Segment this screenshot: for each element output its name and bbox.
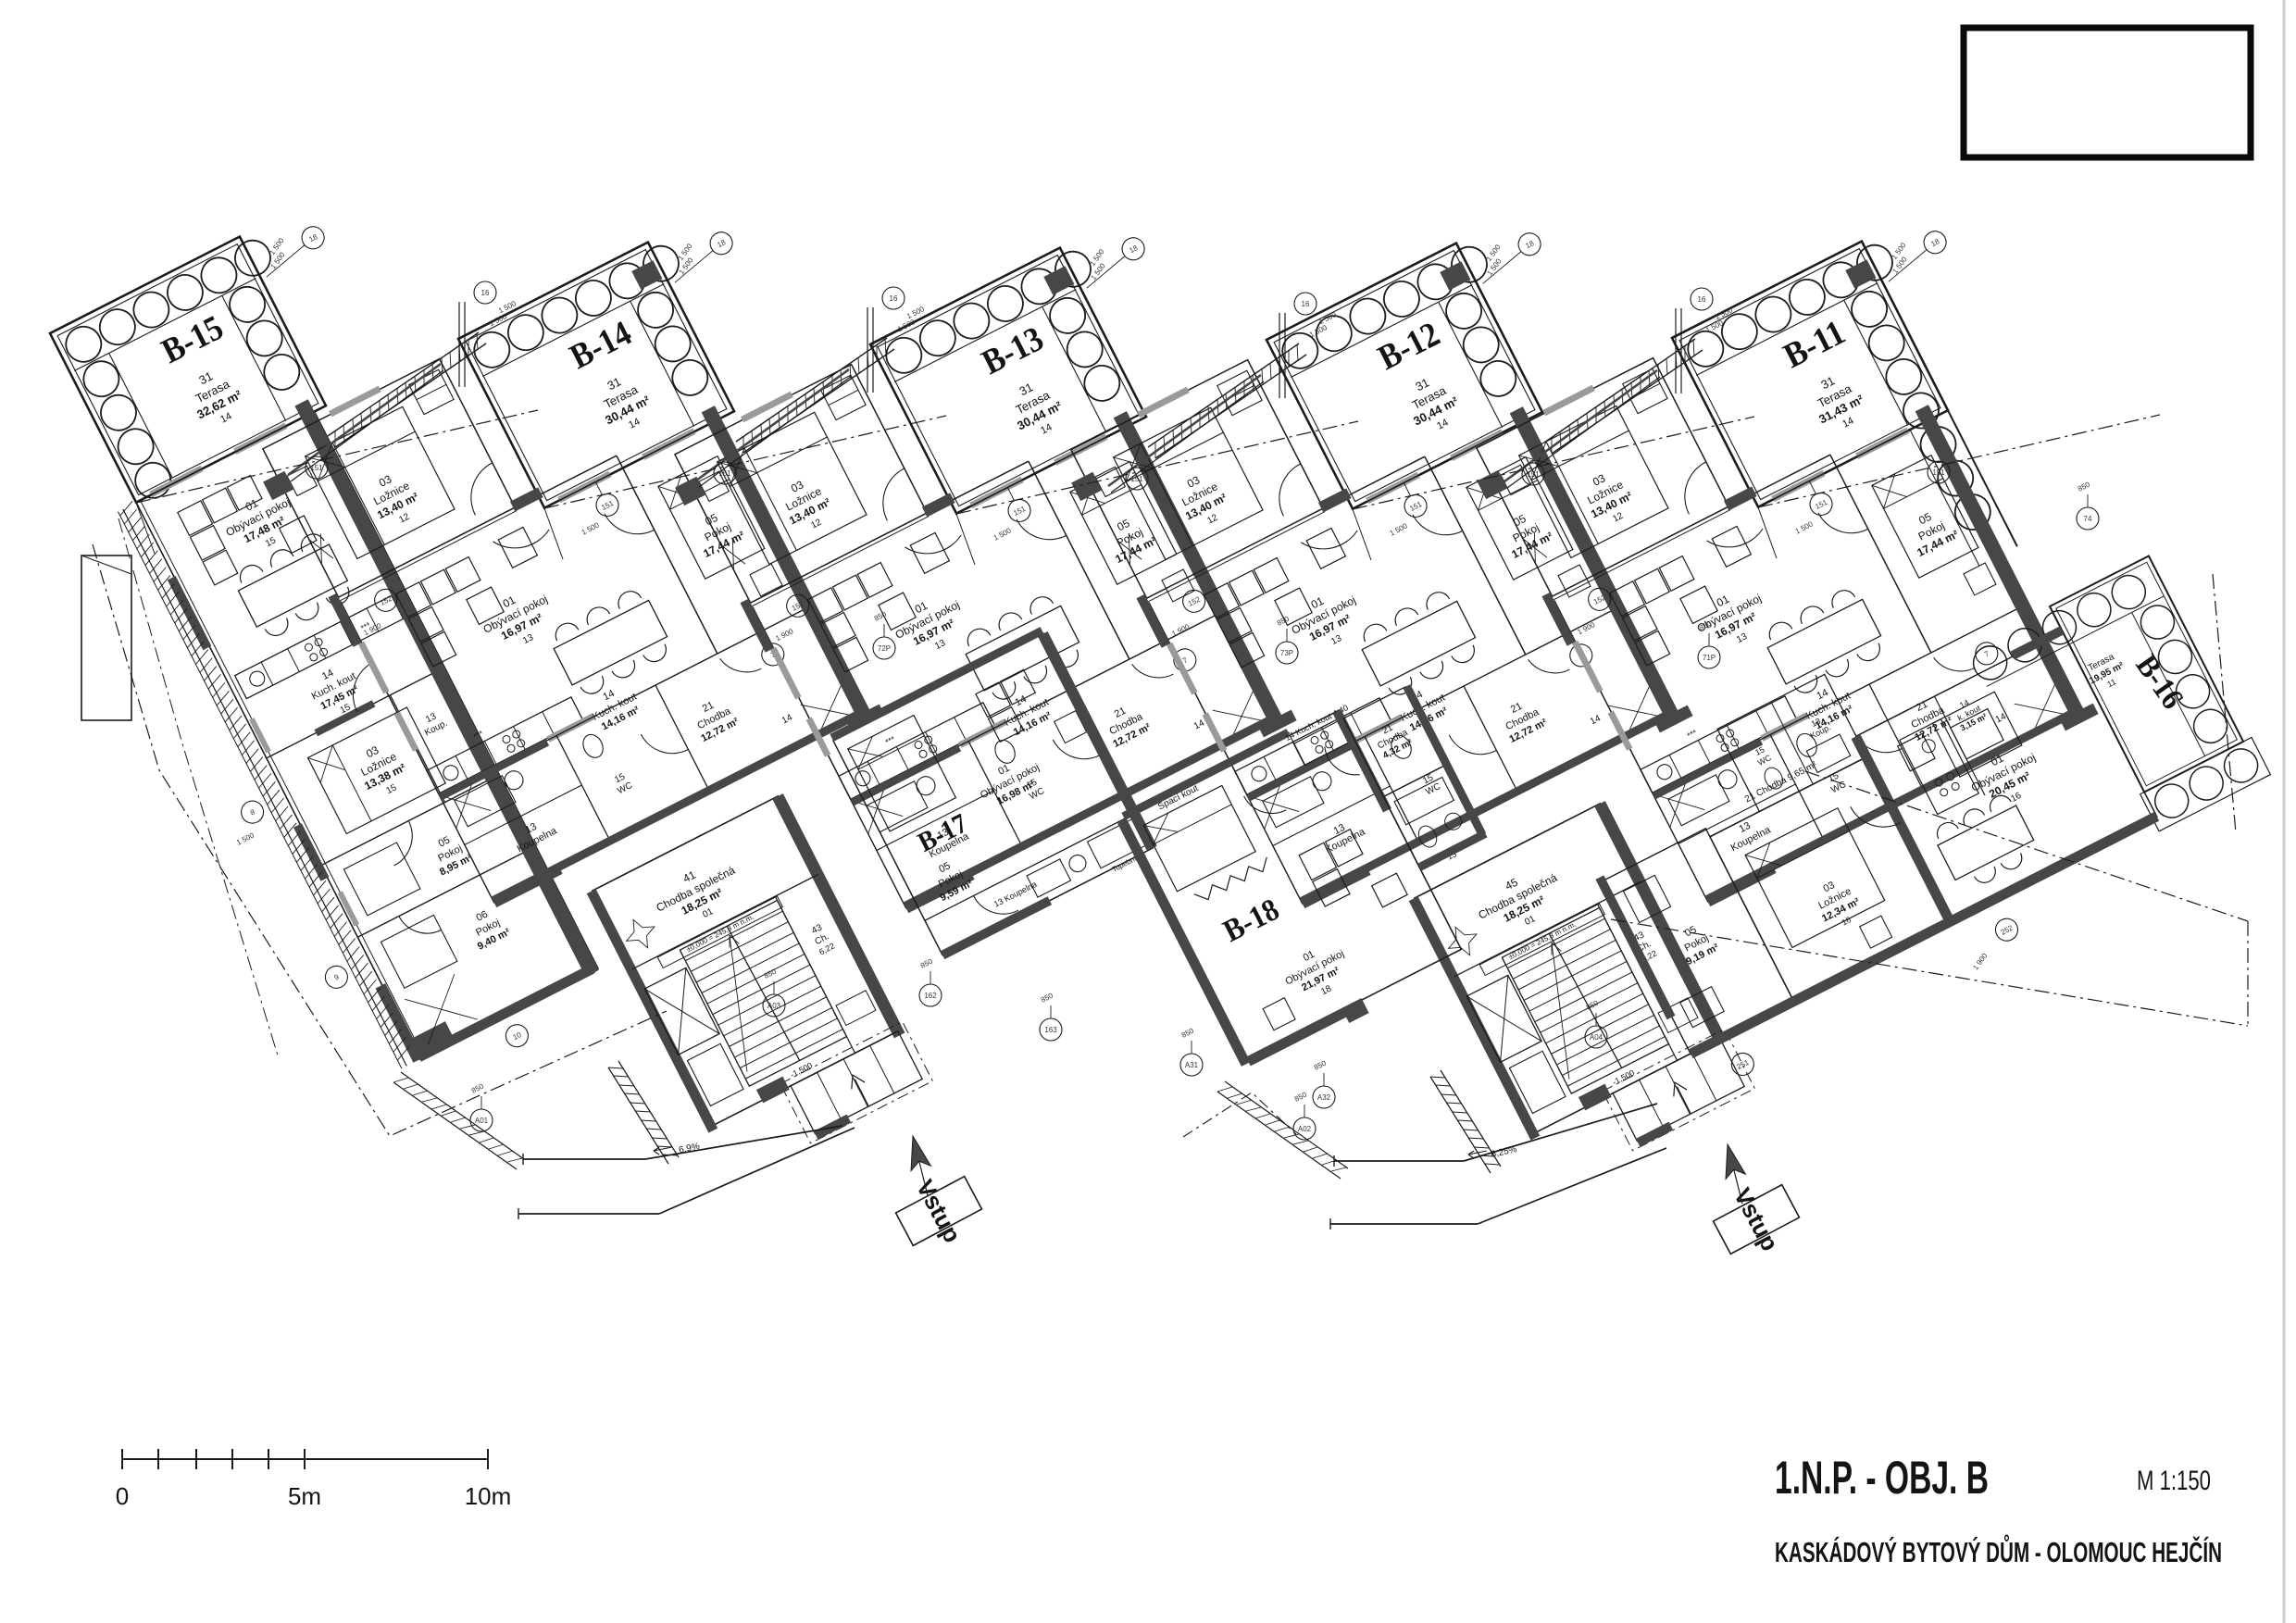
svg-text:0: 0 bbox=[116, 1482, 129, 1510]
svg-text:74: 74 bbox=[2084, 515, 2092, 523]
svg-text:163: 163 bbox=[1044, 1026, 1057, 1034]
svg-text:A32: A32 bbox=[1317, 1093, 1331, 1102]
svg-text:10m: 10m bbox=[465, 1482, 512, 1510]
svg-text:A03: A03 bbox=[767, 1002, 781, 1010]
svg-text:151: 151 bbox=[1527, 470, 1540, 479]
svg-text:16: 16 bbox=[481, 289, 490, 297]
svg-text:71P: 71P bbox=[1703, 654, 1716, 662]
svg-text:5m: 5m bbox=[288, 1482, 321, 1510]
svg-text:151: 151 bbox=[1130, 475, 1143, 483]
svg-text:A31: A31 bbox=[1185, 1061, 1199, 1069]
svg-text:162: 162 bbox=[924, 992, 937, 1000]
svg-text:16: 16 bbox=[1302, 300, 1310, 308]
svg-text:M 1:150: M 1:150 bbox=[2137, 1466, 2211, 1496]
svg-text:16: 16 bbox=[890, 294, 898, 303]
svg-text:151: 151 bbox=[310, 464, 323, 472]
svg-text:151: 151 bbox=[1932, 468, 1945, 477]
svg-text:KASKÁDOVÝ BYTOVÝ DŮM - OLOMOUC: KASKÁDOVÝ BYTOVÝ DŮM - OLOMOUC HEJČÍN bbox=[1775, 1533, 2222, 1568]
svg-text:A01: A01 bbox=[475, 1117, 489, 1125]
svg-text:16: 16 bbox=[1698, 295, 1706, 304]
svg-text:1.N.P. - OBJ. B: 1.N.P. - OBJ. B bbox=[1775, 1452, 1989, 1504]
svg-text:72P: 72P bbox=[878, 644, 891, 653]
svg-text:73P: 73P bbox=[1280, 649, 1293, 657]
svg-text:A02: A02 bbox=[1298, 1125, 1312, 1133]
svg-text:A04: A04 bbox=[1590, 1033, 1603, 1042]
svg-text:151: 151 bbox=[718, 469, 731, 478]
